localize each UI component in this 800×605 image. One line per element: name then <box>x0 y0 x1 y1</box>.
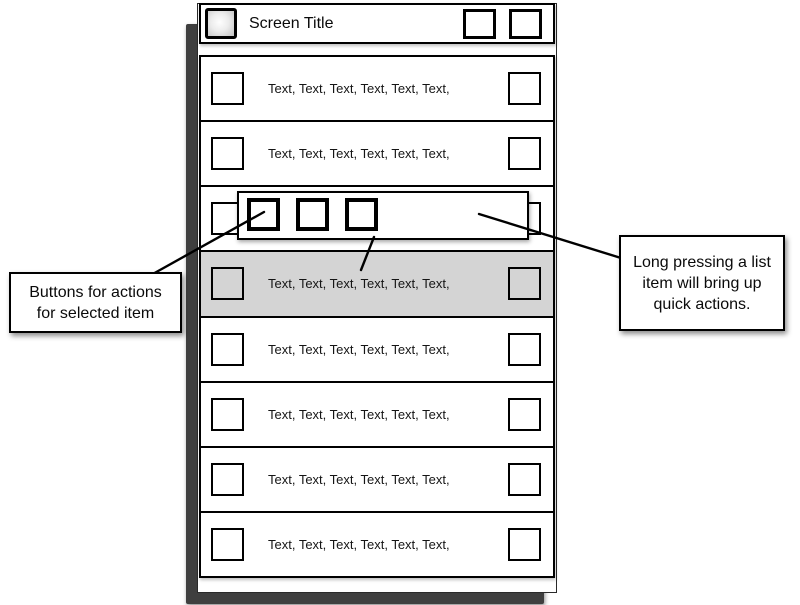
list-row[interactable]: Text, Text, Text, Text, Text, Text, <box>201 511 553 576</box>
callout-right-text-line2: item will bring up <box>621 273 783 294</box>
screen-title: Screen Title <box>249 15 333 33</box>
row-trailing-checkbox[interactable] <box>508 72 541 105</box>
callout-right-text-line3: quick actions. <box>621 294 783 315</box>
row-leading-checkbox[interactable] <box>211 333 244 366</box>
app-icon[interactable] <box>205 8 237 39</box>
callout-right: Long pressing a list item will bring up … <box>619 235 785 331</box>
list-row[interactable]: Text, Text, Text, Text, Text, Text, <box>201 120 553 185</box>
row-leading-checkbox[interactable] <box>211 398 244 431</box>
title-bar-button-2[interactable] <box>509 9 542 39</box>
title-bar: Screen Title <box>199 3 555 44</box>
wireframe-canvas: Screen Title Text, Text, Text, Text, Tex… <box>0 0 800 605</box>
quick-action-button-1[interactable] <box>247 198 280 231</box>
list-row[interactable]: Text, Text, Text, Text, Text, Text, <box>201 57 553 120</box>
callout-right-text-line1: Long pressing a list <box>621 252 783 273</box>
row-leading-checkbox[interactable] <box>211 137 244 170</box>
callout-left-text-line2: for selected item <box>11 303 180 324</box>
list-row[interactable]: Text, Text, Text, Text, Text, Text, <box>201 381 553 446</box>
row-leading-checkbox[interactable] <box>211 463 244 496</box>
list-row[interactable]: Text, Text, Text, Text, Text, Text, <box>201 316 553 381</box>
title-bar-button-1[interactable] <box>463 9 496 39</box>
list-row[interactable]: Text, Text, Text, Text, Text, Text, <box>201 446 553 511</box>
row-text: Text, Text, Text, Text, Text, Text, <box>268 407 508 422</box>
row-text: Text, Text, Text, Text, Text, Text, <box>268 146 508 161</box>
row-text: Text, Text, Text, Text, Text, Text, <box>268 342 508 357</box>
quick-actions-popup <box>237 191 529 240</box>
row-leading-checkbox[interactable] <box>211 267 244 300</box>
row-trailing-checkbox[interactable] <box>508 267 541 300</box>
row-trailing-checkbox[interactable] <box>508 528 541 561</box>
row-trailing-checkbox[interactable] <box>508 333 541 366</box>
row-leading-checkbox[interactable] <box>211 528 244 561</box>
row-text: Text, Text, Text, Text, Text, Text, <box>268 537 508 552</box>
row-trailing-checkbox[interactable] <box>508 137 541 170</box>
row-text: Text, Text, Text, Text, Text, Text, <box>268 276 508 291</box>
row-trailing-checkbox[interactable] <box>508 463 541 496</box>
row-leading-checkbox[interactable] <box>211 72 244 105</box>
callout-left-text-line1: Buttons for actions <box>11 282 180 303</box>
item-list: Text, Text, Text, Text, Text, Text, Text… <box>199 55 555 578</box>
row-trailing-checkbox[interactable] <box>508 398 541 431</box>
quick-action-button-2[interactable] <box>296 198 329 231</box>
list-row[interactable]: Text, Text, Text, Text, Text, Text, <box>201 250 553 315</box>
callout-left: Buttons for actions for selected item <box>9 272 182 333</box>
row-text: Text, Text, Text, Text, Text, Text, <box>268 81 508 96</box>
quick-action-button-3[interactable] <box>345 198 378 231</box>
row-text: Text, Text, Text, Text, Text, Text, <box>268 472 508 487</box>
